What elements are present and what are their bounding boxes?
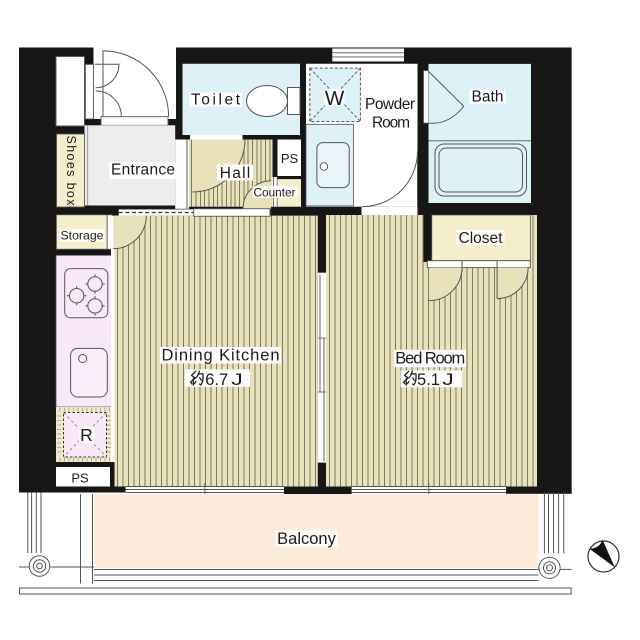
svg-text:Entrance: Entrance [111,162,175,179]
svg-text:6.7: 6.7 [205,371,228,389]
svg-text:Dining Kitchen: Dining Kitchen [162,347,280,365]
svg-text:Powder: Powder [365,96,415,113]
svg-text:Balcony: Balcony [277,530,336,548]
svg-text:Bed Room: Bed Room [395,349,465,367]
svg-text:J: J [231,371,243,389]
svg-text:Room: Room [372,115,410,132]
svg-text:W: W [325,87,345,110]
svg-text:Storage: Storage [60,228,103,242]
svg-text:Counter: Counter [254,185,296,199]
svg-text:J: J [442,371,454,389]
svg-text:5.1: 5.1 [417,371,440,389]
svg-text:Bath: Bath [472,89,504,106]
svg-text:PS: PS [71,470,89,485]
svg-text:Closet: Closet [459,230,504,247]
svg-text:PS: PS [281,151,299,166]
svg-text:R: R [80,425,93,445]
svg-text:Shoes box: Shoes box [64,136,78,207]
